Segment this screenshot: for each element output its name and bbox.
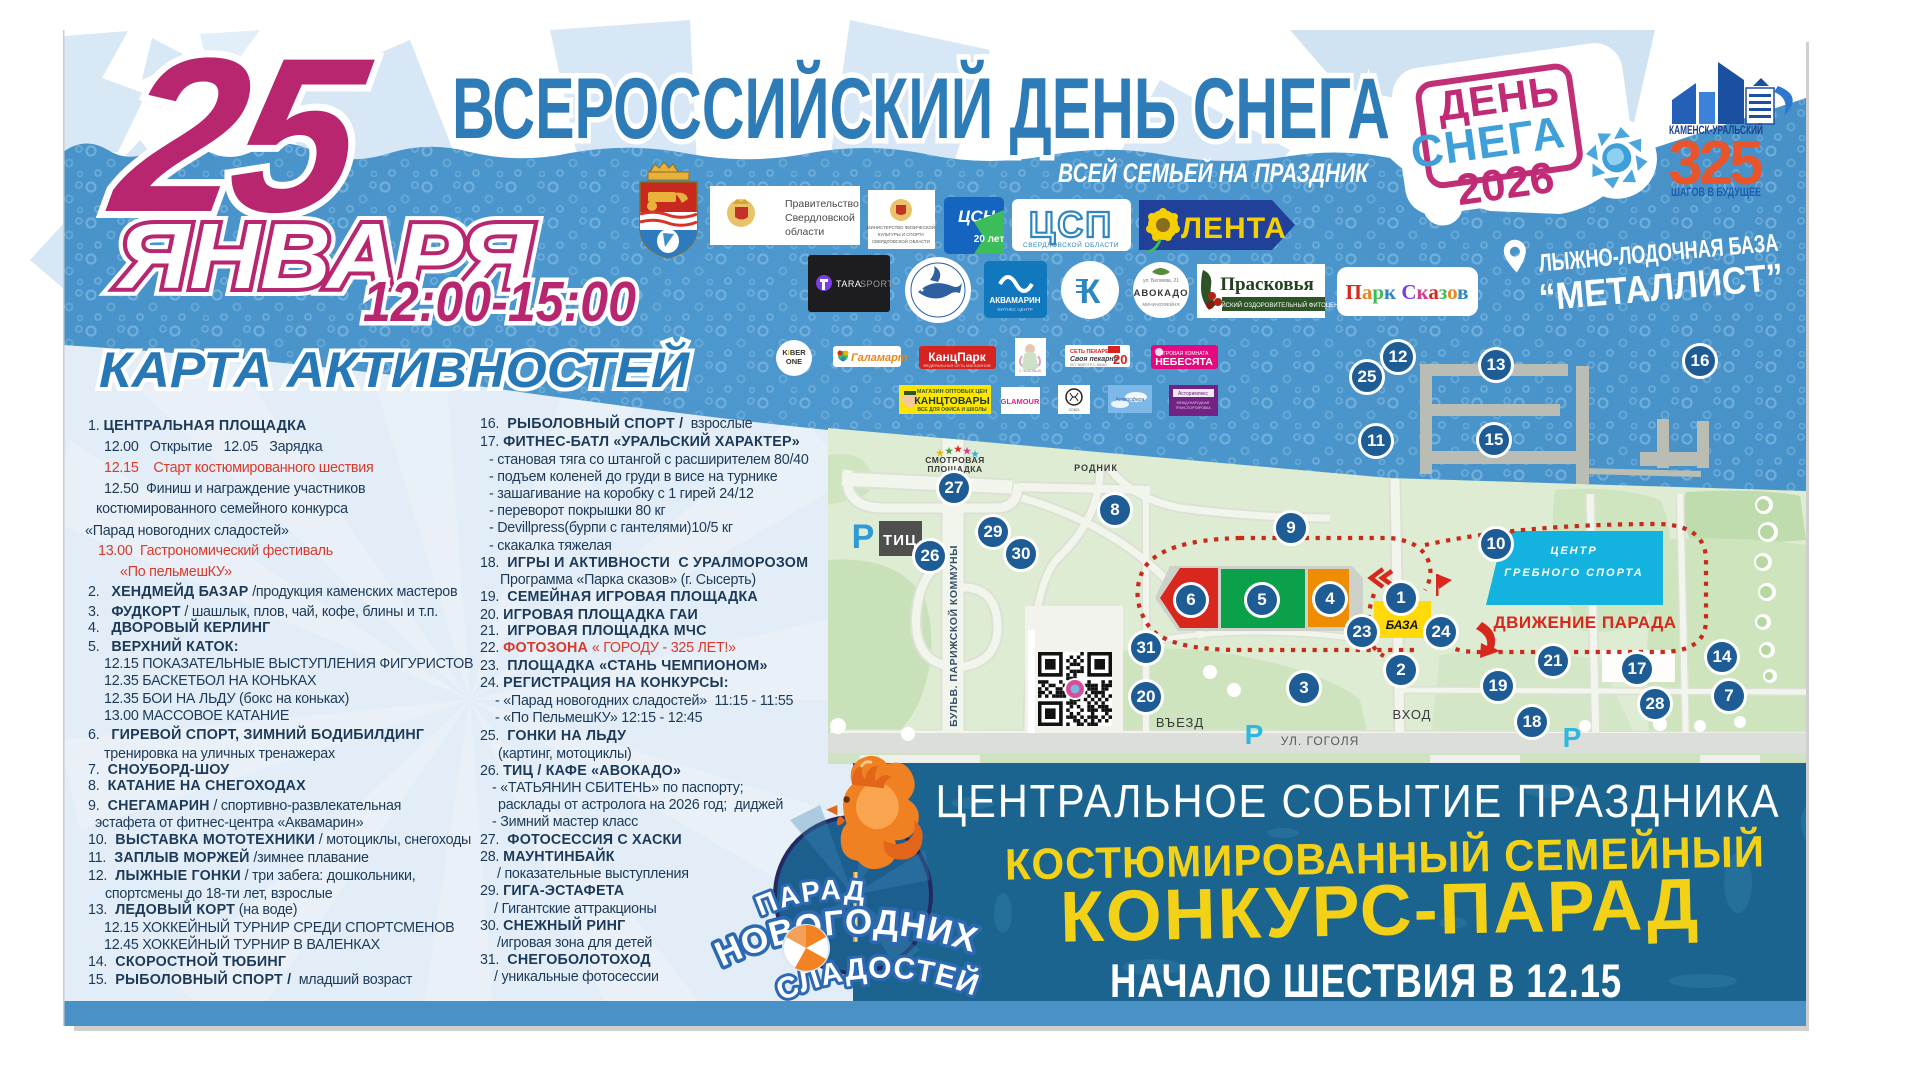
svg-text:20: 20 <box>1113 352 1127 367</box>
svg-text:Парк Сказов: Парк Сказов <box>1345 280 1468 304</box>
svg-text:Асторимпекс: Асторимпекс <box>1178 391 1209 397</box>
svg-text:KIBER: KIBER <box>782 348 806 357</box>
svg-text:С ЛЮБОВЬЮ: С ЛЮБОВЬЮ <box>1019 369 1042 373</box>
svg-text:СВЕРДЛОВСКОЙ ОБЛАСТИ: СВЕРДЛОВСКОЙ ОБЛАСТИ <box>1023 240 1119 249</box>
svg-text:СЕТЬ ПЕКАРЕН: СЕТЬ ПЕКАРЕН <box>1070 349 1113 355</box>
svg-text:Прасковья: Прасковья <box>1220 274 1314 295</box>
svg-text:НЕБЕСЯТА: НЕБЕСЯТА <box>1155 356 1213 368</box>
svg-text:АВОКАДО: АВОКАДО <box>1133 288 1188 299</box>
svg-text:SPORT: SPORT <box>860 279 893 289</box>
svg-text:Правительство: Правительство <box>785 198 859 210</box>
svg-text:КОНКУРС-ПАРАД: КОНКУРС-ПАРАД <box>1059 864 1701 957</box>
svg-text:ЦСП: ЦСП <box>1029 204 1113 245</box>
svg-text:КАНЦТОВАРЫ: КАНЦТОВАРЫ <box>914 395 990 407</box>
svg-text:TARA: TARA <box>836 279 861 289</box>
svg-text:ФИТНЕС ЦЕНТР: ФИТНЕС ЦЕНТР <box>997 307 1033 312</box>
svg-text:НАЧАЛО ШЕСТВИЯ В 12.15: НАЧАЛО ШЕСТВИЯ В 12.15 <box>1110 954 1622 1001</box>
svg-text:ТРАНСПОРТИРОВКА: ТРАНСПОРТИРОВКА <box>1175 406 1211 410</box>
svg-text:ВСЕ ДЛЯ ОФИСА И ШКОЛЫ: ВСЕ ДЛЯ ОФИСА И ШКОЛЫ <box>917 407 986 413</box>
svg-text:ул. Беляева, 21: ул. Беляева, 21 <box>1143 278 1179 284</box>
svg-text:ЛЕНТА: ЛЕНТА <box>1181 212 1287 245</box>
svg-text:Галамарт: Галамарт <box>851 352 908 364</box>
svg-text:АКВАМАРИН: АКВАМАРИН <box>989 296 1040 305</box>
svg-text:КанцПарк: КанцПарк <box>928 350 986 364</box>
svg-text:ЛЕТ ВМЕСТЕ С ВАМИ: ЛЕТ ВМЕСТЕ С ВАМИ <box>1070 363 1107 367</box>
svg-text:ФЕДЕРАЛЬНАЯ СЕТЬ МАГАЗИНОВ: ФЕДЕРАЛЬНАЯ СЕТЬ МАГАЗИНОВ <box>923 363 991 368</box>
svg-text:СВЕРДЛОВСКОЙ ОБЛАСТИ: СВЕРДЛОВСКОЙ ОБЛАСТИ <box>872 239 930 244</box>
svg-text:МИНИ-КОФЕЙНЯ: МИНИ-КОФЕЙНЯ <box>1142 300 1179 307</box>
svg-text:области: области <box>785 226 824 238</box>
svg-text:ONE: ONE <box>786 357 802 366</box>
svg-text:МЕЖДУНАРОДНАЯ: МЕЖДУНАРОДНАЯ <box>1177 401 1210 405</box>
svg-text:Своя пекарня: Своя пекарня <box>1070 356 1118 363</box>
svg-text:GLAMOUR: GLAMOUR <box>1001 397 1040 406</box>
svg-text:20 лет: 20 лет <box>974 234 1005 245</box>
svg-text:Свердловской: Свердловской <box>785 212 855 224</box>
svg-text:КУЛЬТУРЫ И СПОРТА: КУЛЬТУРЫ И СПОРТА <box>878 232 924 237</box>
svg-text:Атмосфера: Атмосфера <box>1115 397 1145 403</box>
svg-text:ЦЕНТРАЛЬНОЕ СОБЫТИЕ ПРАЗДНИКА: ЦЕНТРАЛЬНОЕ СОБЫТИЕ ПРАЗДНИКА <box>936 775 1781 827</box>
svg-text:СОЮЗ: СОЮЗ <box>1069 408 1080 412</box>
svg-text:МИНИСТЕРСТВО ФИЗИЧЕСКОЙ: МИНИСТЕРСТВО ФИЗИЧЕСКОЙ <box>867 225 935 230</box>
